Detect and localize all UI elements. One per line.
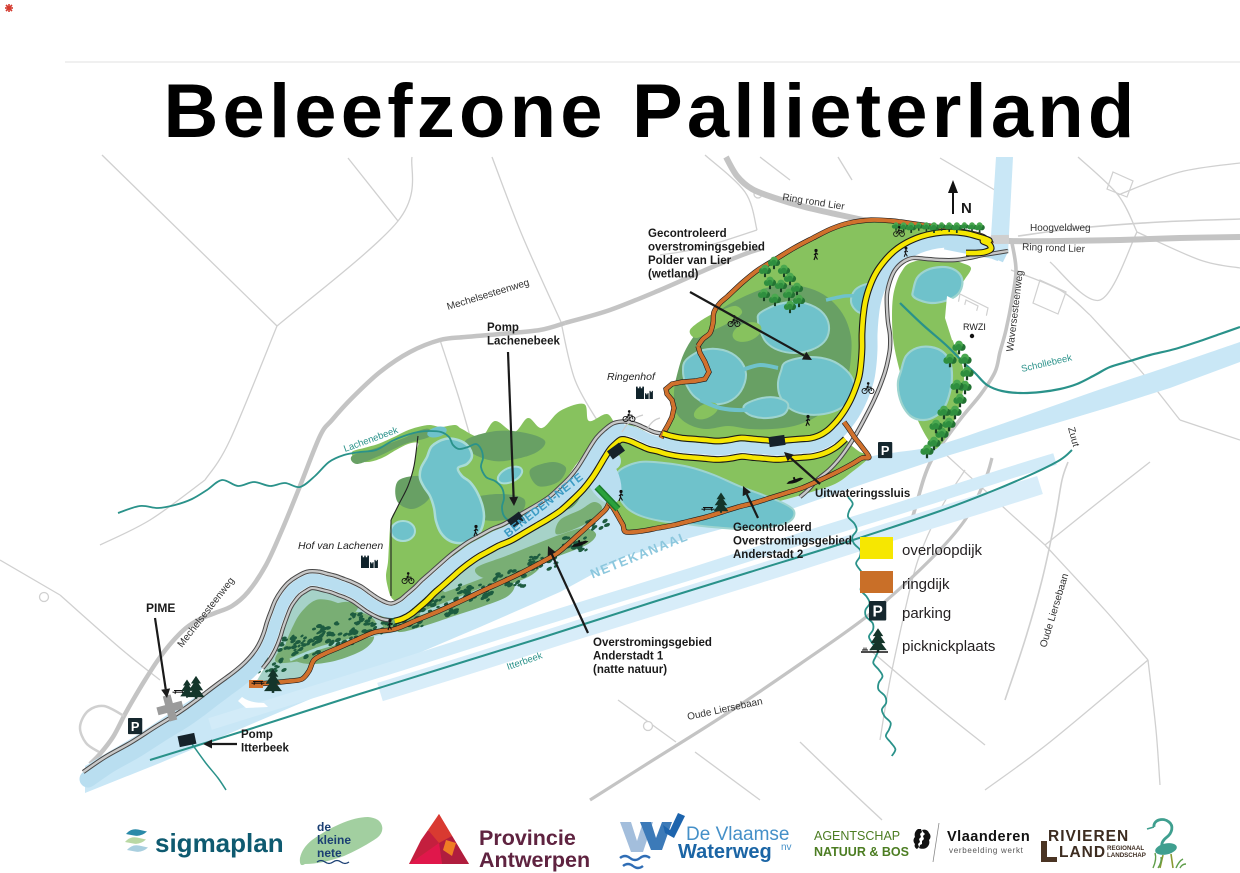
svg-text:Overstromingsgebied: Overstromingsgebied [593, 637, 712, 649]
svg-text:P: P [881, 443, 890, 458]
svg-text:Pomp: Pomp [487, 322, 519, 334]
svg-text:Pomp: Pomp [241, 729, 273, 741]
svg-text:sigmaplan: sigmaplan [155, 828, 284, 858]
svg-text:de: de [317, 820, 331, 834]
svg-text:kleine: kleine [317, 833, 351, 847]
svg-text:NATUUR & BOS: NATUUR & BOS [814, 845, 909, 859]
svg-text:N: N [961, 200, 972, 217]
svg-text:Ring rond Lier: Ring rond Lier [1022, 242, 1086, 255]
svg-text:nv: nv [781, 842, 792, 853]
svg-text:Polder van Lier: Polder van Lier [648, 255, 732, 267]
svg-text:Hof van Lachenen: Hof van Lachenen [298, 540, 383, 552]
svg-text:nete: nete [317, 846, 342, 860]
svg-text:Overstromingsgebied: Overstromingsgebied [733, 536, 852, 548]
svg-text:Anderstadt 1: Anderstadt 1 [593, 651, 664, 663]
svg-text:Gecontroleerd: Gecontroleerd [733, 522, 812, 534]
svg-text:Beleefzone Pallieterland: Beleefzone Pallieterland [163, 69, 1138, 154]
svg-text:(wetland): (wetland) [648, 269, 699, 281]
svg-text:picknickplaats: picknickplaats [902, 638, 995, 655]
svg-text:verbeelding werkt: verbeelding werkt [949, 846, 1024, 855]
svg-text:parking: parking [902, 605, 951, 622]
svg-text:Itterbeek: Itterbeek [241, 743, 290, 755]
svg-text:PIME: PIME [146, 601, 175, 615]
svg-text:Ringenhof: Ringenhof [607, 371, 656, 383]
svg-text:Lachenebeek: Lachenebeek [487, 336, 560, 348]
svg-text:Anderstadt 2: Anderstadt 2 [733, 549, 803, 561]
svg-text:Uitwateringssluis: Uitwateringssluis [815, 488, 910, 500]
svg-text:Provincie: Provincie [479, 826, 576, 850]
svg-text:RWZI: RWZI [963, 322, 986, 332]
svg-text:(natte natuur): (natte natuur) [593, 664, 667, 676]
svg-text:Waterweg: Waterweg [678, 841, 772, 863]
svg-text:P: P [872, 604, 882, 621]
svg-text:Antwerpen: Antwerpen [479, 848, 590, 872]
svg-text:overloopdijk: overloopdijk [902, 542, 983, 559]
svg-text:Vlaanderen: Vlaanderen [947, 829, 1030, 845]
svg-text:AGENTSCHAP: AGENTSCHAP [814, 829, 900, 843]
svg-text:LANDSCHAP: LANDSCHAP [1107, 852, 1146, 859]
svg-text:REGIONAAL: REGIONAAL [1107, 845, 1144, 852]
svg-text:P: P [131, 719, 140, 734]
svg-text:overstromingsgebied: overstromingsgebied [648, 242, 765, 254]
svg-text:ringdijk: ringdijk [902, 576, 950, 593]
svg-text:LAND: LAND [1059, 844, 1106, 861]
svg-text:Gecontroleerd: Gecontroleerd [648, 228, 727, 240]
svg-text:Hoogveldweg: Hoogveldweg [1030, 223, 1091, 234]
svg-text:RIVIEREN: RIVIEREN [1048, 828, 1129, 845]
